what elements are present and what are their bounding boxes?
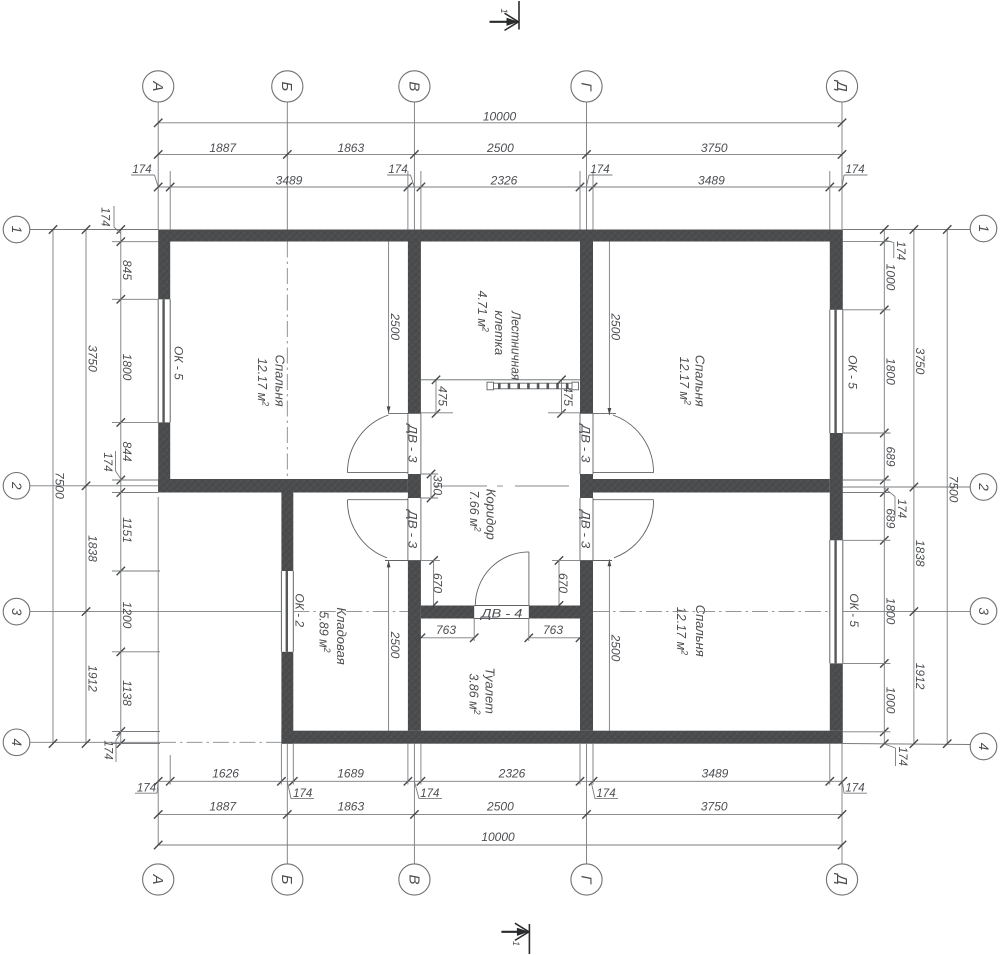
svg-text:4.71 м2: 4.71 м2 bbox=[475, 291, 491, 332]
svg-text:2326: 2326 bbox=[498, 767, 526, 781]
svg-text:689: 689 bbox=[884, 446, 898, 466]
svg-text:3.86 м2: 3.86 м2 bbox=[466, 673, 482, 714]
svg-text:174: 174 bbox=[894, 241, 906, 260]
svg-text:5.89 м2: 5.89 м2 bbox=[316, 611, 332, 652]
svg-text:174: 174 bbox=[896, 747, 908, 766]
svg-text:1151: 1151 bbox=[120, 517, 134, 543]
svg-text:1838: 1838 bbox=[85, 535, 99, 562]
svg-text:1912: 1912 bbox=[85, 665, 99, 692]
svg-text:3489: 3489 bbox=[698, 174, 725, 188]
svg-text:10000: 10000 bbox=[481, 830, 515, 844]
svg-text:Туалет: Туалет bbox=[483, 668, 498, 715]
svg-text:174: 174 bbox=[132, 164, 151, 176]
svg-text:3750: 3750 bbox=[701, 141, 728, 155]
svg-text:1887: 1887 bbox=[209, 800, 237, 814]
svg-text:1800: 1800 bbox=[884, 598, 898, 625]
svg-text:2500: 2500 bbox=[486, 141, 514, 155]
svg-text:Спальня: Спальня bbox=[693, 605, 708, 657]
svg-text:2500: 2500 bbox=[486, 800, 514, 814]
svg-text:1800: 1800 bbox=[120, 354, 134, 381]
svg-text:1200: 1200 bbox=[120, 602, 134, 629]
svg-text:ДВ - 3: ДВ - 3 bbox=[579, 508, 593, 549]
svg-text:ОК - 5: ОК - 5 bbox=[171, 346, 185, 380]
svg-text:Спальня: Спальня bbox=[692, 355, 707, 407]
svg-text:Б: Б bbox=[278, 875, 295, 885]
svg-text:7.66 м2: 7.66 м2 bbox=[467, 490, 483, 531]
svg-text:174: 174 bbox=[99, 207, 111, 226]
svg-text:10000: 10000 bbox=[483, 109, 517, 123]
svg-text:3489: 3489 bbox=[702, 767, 729, 781]
svg-text:ДВ - 3: ДВ - 3 bbox=[406, 508, 420, 549]
svg-text:А: А bbox=[149, 873, 166, 884]
svg-text:1912: 1912 bbox=[913, 663, 927, 690]
svg-text:3750: 3750 bbox=[913, 348, 927, 375]
svg-text:174: 174 bbox=[102, 740, 114, 759]
svg-text:4: 4 bbox=[9, 739, 24, 747]
svg-text:1838: 1838 bbox=[913, 540, 927, 567]
svg-text:174: 174 bbox=[845, 164, 864, 176]
svg-text:1689: 1689 bbox=[337, 767, 364, 781]
svg-text:670: 670 bbox=[431, 573, 445, 593]
svg-text:3: 3 bbox=[9, 608, 24, 616]
svg-text:Кладовая: Кладовая bbox=[334, 607, 349, 664]
svg-text:845: 845 bbox=[120, 260, 134, 280]
svg-text:ОК - 5: ОК - 5 bbox=[846, 355, 860, 389]
svg-text:763: 763 bbox=[543, 623, 563, 637]
svg-text:12.17 м2: 12.17 м2 bbox=[255, 358, 271, 406]
svg-text:3: 3 bbox=[976, 607, 991, 615]
svg-text:7500: 7500 bbox=[947, 476, 961, 503]
svg-text:174: 174 bbox=[590, 164, 609, 176]
svg-text:475: 475 bbox=[435, 386, 449, 406]
svg-text:1: 1 bbox=[511, 941, 521, 946]
svg-text:ДВ - 3: ДВ - 3 bbox=[406, 422, 420, 463]
svg-text:В: В bbox=[405, 874, 422, 884]
svg-text:Лестничная: Лестничная bbox=[508, 310, 523, 380]
svg-text:Коридор: Коридор bbox=[484, 489, 499, 540]
svg-text:Спальня: Спальня bbox=[273, 355, 288, 407]
svg-text:3750: 3750 bbox=[85, 345, 99, 372]
svg-text:3489: 3489 bbox=[276, 174, 303, 188]
svg-text:1000: 1000 bbox=[884, 687, 898, 714]
svg-text:1: 1 bbox=[499, 8, 509, 13]
svg-text:2500: 2500 bbox=[388, 312, 402, 340]
svg-text:ОК - 2: ОК - 2 bbox=[292, 593, 306, 627]
svg-text:174: 174 bbox=[845, 783, 864, 795]
svg-text:В: В bbox=[405, 81, 422, 91]
svg-text:ДВ - 4: ДВ - 4 bbox=[479, 606, 523, 620]
svg-text:1863: 1863 bbox=[337, 141, 364, 155]
svg-text:4: 4 bbox=[976, 743, 991, 751]
svg-text:1863: 1863 bbox=[337, 800, 364, 814]
svg-text:12.17 м2: 12.17 м2 bbox=[677, 357, 693, 405]
svg-text:350: 350 bbox=[430, 475, 444, 495]
svg-text:2500: 2500 bbox=[388, 631, 402, 659]
svg-text:2500: 2500 bbox=[609, 312, 623, 340]
svg-text:7500: 7500 bbox=[52, 472, 66, 499]
svg-text:174: 174 bbox=[101, 452, 113, 471]
svg-text:2500: 2500 bbox=[609, 634, 623, 662]
svg-text:3750: 3750 bbox=[701, 800, 728, 814]
svg-text:клетка: клетка bbox=[492, 310, 507, 355]
svg-text:Д: Д bbox=[833, 79, 850, 92]
svg-text:2: 2 bbox=[9, 481, 24, 490]
svg-text:ДВ - 3: ДВ - 3 bbox=[579, 422, 593, 463]
svg-text:1138: 1138 bbox=[120, 680, 134, 706]
svg-text:А: А bbox=[149, 80, 166, 91]
svg-text:1800: 1800 bbox=[884, 358, 898, 385]
svg-text:12.17 м2: 12.17 м2 bbox=[674, 607, 690, 655]
svg-text:763: 763 bbox=[436, 623, 456, 637]
svg-text:1: 1 bbox=[976, 225, 991, 233]
svg-text:174: 174 bbox=[388, 164, 407, 176]
svg-text:1887: 1887 bbox=[209, 141, 237, 155]
svg-text:689: 689 bbox=[884, 508, 898, 528]
svg-text:Д: Д bbox=[833, 872, 850, 885]
svg-text:1: 1 bbox=[9, 226, 24, 234]
svg-text:670: 670 bbox=[556, 573, 570, 593]
svg-text:2326: 2326 bbox=[490, 174, 518, 188]
svg-text:ОК - 5: ОК - 5 bbox=[847, 593, 861, 627]
svg-text:174: 174 bbox=[137, 783, 156, 795]
svg-text:844: 844 bbox=[120, 441, 134, 461]
svg-text:Б: Б bbox=[278, 82, 295, 92]
svg-text:1626: 1626 bbox=[212, 767, 239, 781]
svg-text:1000: 1000 bbox=[884, 264, 898, 291]
svg-text:2: 2 bbox=[976, 482, 991, 491]
svg-text:475: 475 bbox=[561, 386, 575, 406]
